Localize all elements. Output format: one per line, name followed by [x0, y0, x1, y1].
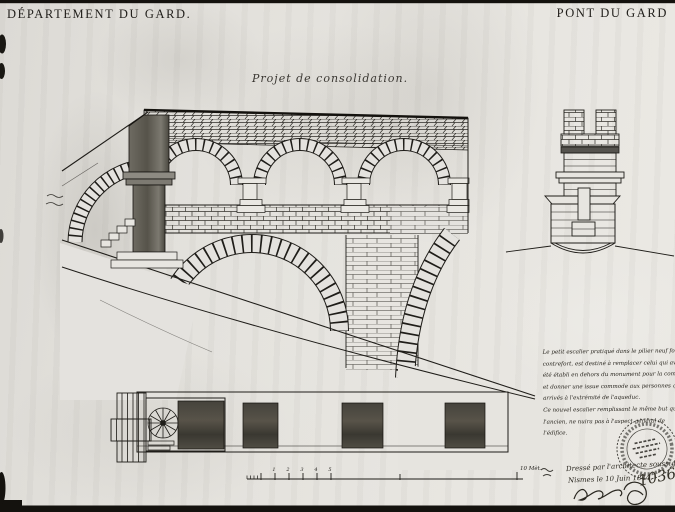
tower-dark-stripe — [561, 147, 619, 153]
upper-arch-ring-2 — [260, 145, 341, 186]
drawing-sheet: 1 2 3 4 5 10 Mèt. DÉPARTEMENT DU GARD. P… — [0, 0, 675, 512]
plan-pier-1 — [178, 401, 224, 449]
plan-pier-3 — [342, 403, 383, 448]
scale-tick-label: 5 — [328, 467, 331, 473]
tower-door-slot — [578, 188, 590, 220]
architect-signature — [574, 482, 646, 504]
upper-arch-ring-3 — [364, 145, 445, 186]
hill-crest-line-2 — [62, 163, 98, 186]
tower-crenellation — [564, 110, 616, 134]
tower-rock-base — [551, 243, 615, 253]
plan-stair-block — [146, 398, 225, 451]
stair-tower-drawing — [506, 110, 674, 256]
slope-annotation-scribble — [46, 195, 63, 206]
spiral-staircase — [148, 408, 178, 438]
pier-cornice — [123, 172, 175, 179]
header-monument: PONT DU GARD — [557, 6, 668, 21]
handwritten-note: Le petit escalier pratiqué dans le pilie… — [543, 346, 675, 440]
plan-pier-2 — [243, 403, 278, 448]
tower-brick-band — [561, 134, 619, 146]
scale-tick-label: 1 — [272, 467, 275, 473]
note-line: l'édifice. — [543, 427, 675, 440]
header-department: DÉPARTEMENT DU GARD. — [7, 7, 191, 22]
drawing-title: Projet de consolidation. — [252, 72, 408, 85]
scale-tick-label: 4 — [313, 467, 317, 473]
note-line: Le petit escalier pratiqué dans le pilie… — [543, 346, 675, 359]
note-line: l'ancien, ne nuira pas à l'aspect généra… — [543, 416, 675, 429]
tower-ground-line — [506, 246, 674, 256]
tower-mid-cornice — [556, 172, 624, 178]
tower-upper-shaft — [564, 153, 616, 172]
scale-tick-label: 2 — [285, 467, 289, 473]
note-line: et donner une issue commode aux personne… — [543, 381, 675, 394]
spandrel-brick-band — [140, 205, 468, 233]
scale-tick-label: 3 — [300, 467, 303, 473]
plan-pier-4 — [445, 403, 485, 448]
note-line: Ce nouvel escalier remplissant le même b… — [543, 404, 675, 417]
plan-external-steps — [111, 393, 151, 462]
scale-end-label: 10 Mèt. — [520, 465, 542, 472]
